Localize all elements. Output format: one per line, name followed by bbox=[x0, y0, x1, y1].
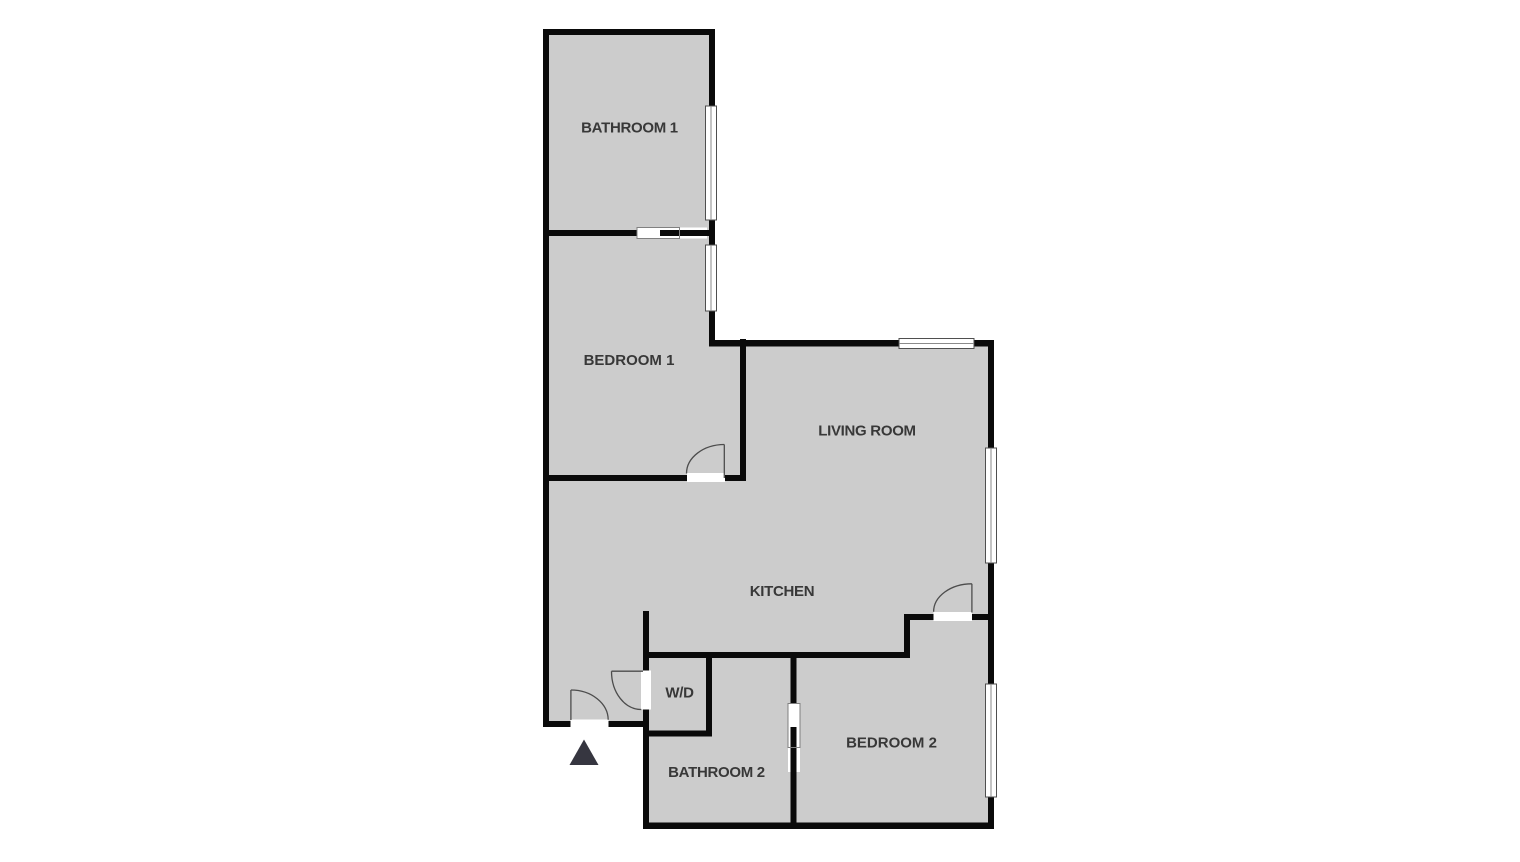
svg-text:BEDROOM 2: BEDROOM 2 bbox=[846, 735, 937, 752]
svg-text:BEDROOM 1: BEDROOM 1 bbox=[584, 352, 675, 369]
svg-text:KITCHEN: KITCHEN bbox=[750, 583, 815, 600]
svg-text:BATHROOM 2: BATHROOM 2 bbox=[668, 764, 765, 781]
svg-text:W/D: W/D bbox=[665, 685, 694, 702]
svg-text:BATHROOM 1: BATHROOM 1 bbox=[581, 120, 678, 137]
svg-text:LIVING ROOM: LIVING ROOM bbox=[818, 423, 916, 440]
